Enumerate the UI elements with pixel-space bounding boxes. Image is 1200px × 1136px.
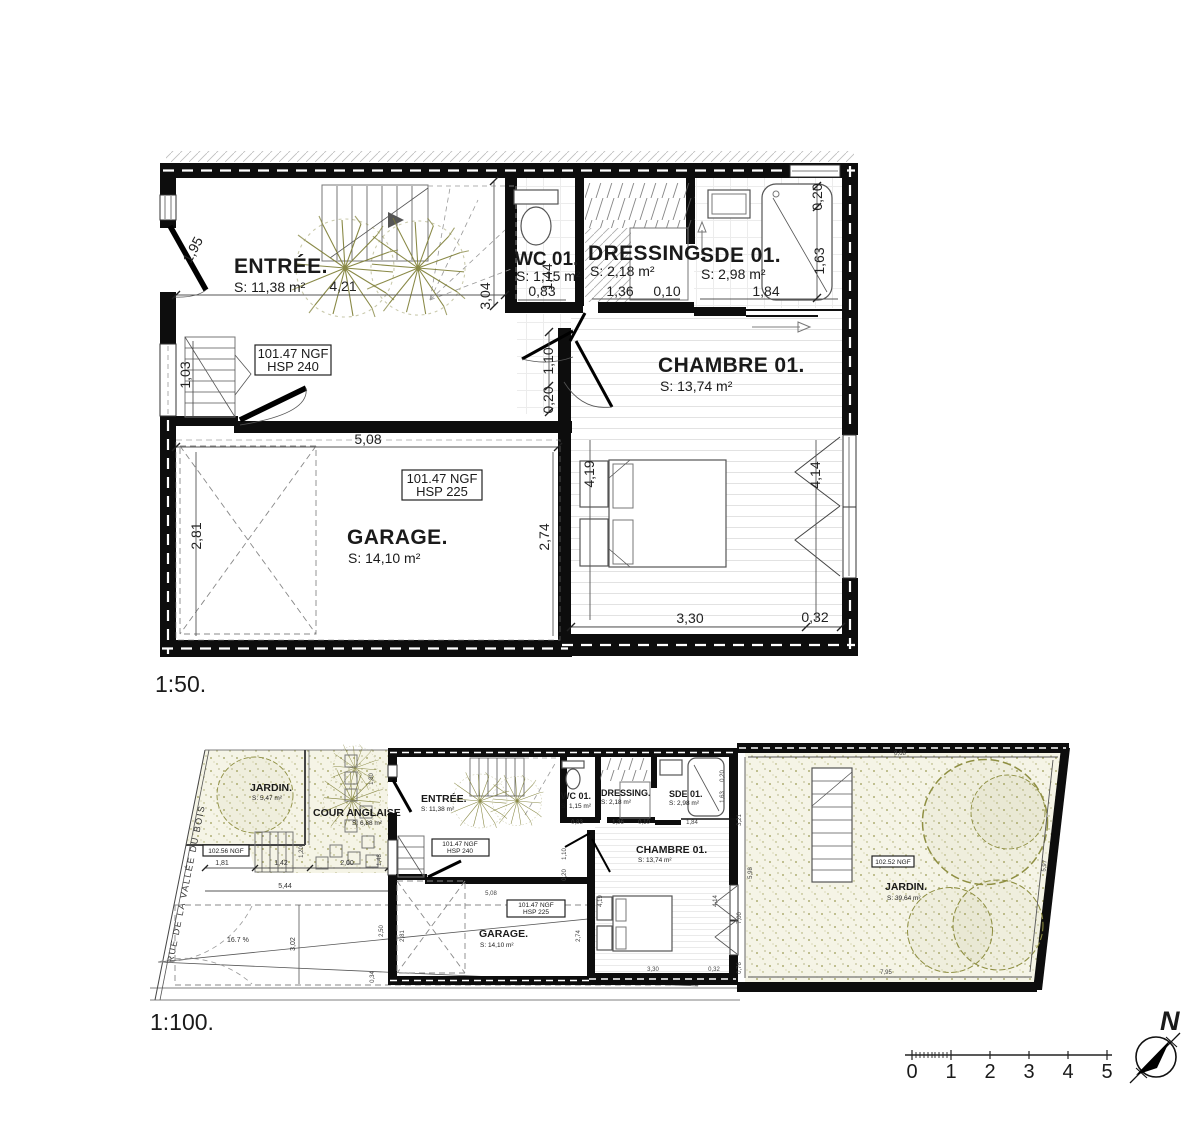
- scalebar-1: 1: [945, 1061, 956, 1083]
- dim-cour-2: 1,48: [377, 854, 383, 866]
- dim-front-c: 2,00: [340, 860, 354, 867]
- ngf-box-garage-small: 101.47 NGF HSP 225: [507, 900, 565, 917]
- room-label-sde: SDE 01.: [700, 244, 781, 267]
- insulation-hatch: [166, 151, 854, 162]
- ngf-text: 101.47 NGF: [442, 841, 477, 848]
- room-label-entree: ENTRÉE.: [234, 255, 328, 278]
- dim-hall-1: 1,10: [540, 347, 556, 374]
- dim-garden-l3: 7,00: [737, 912, 743, 924]
- dim-small: 0,20: [720, 770, 726, 782]
- dim-small: 1,10: [562, 848, 568, 860]
- dim-small: 4,14: [713, 895, 719, 907]
- jardin-back-label: JARDIN.: [885, 881, 927, 893]
- dim-garden-l4: 0,76: [737, 962, 743, 974]
- room-area-dressing-small: S: 2,18 m²: [601, 799, 632, 806]
- room-area-chambre: S: 13,74 m²: [660, 378, 733, 394]
- ngf-box-entree-small: 101.47 NGF HSP 240: [432, 839, 489, 856]
- room-area-garage-small: S: 14,10 m²: [480, 942, 514, 949]
- entree-hsp: HSP 240: [267, 359, 319, 374]
- room-area-dressing: S: 2,18 m²: [590, 263, 655, 279]
- scalebar-4: 4: [1062, 1061, 1073, 1083]
- dim-chambre-right: 4,14: [807, 461, 823, 488]
- floor-plan-sheet: 101.47 NGF HSP 240 101.47 NGF HSP 225 EN…: [0, 0, 1200, 1136]
- jardin-back-area: S: 39,64 m²: [887, 895, 921, 902]
- room-area-garage: S: 14,10 m²: [348, 550, 421, 566]
- back-ngf-level: 102.52 NGF: [875, 859, 910, 866]
- ramp-slope: 16.7 %: [227, 937, 249, 944]
- room-label-sde-small: SDE 01.: [669, 789, 703, 799]
- dim-front-b: 1,42: [274, 860, 288, 867]
- hsp-text: HSP 225: [523, 909, 549, 916]
- room-label-chambre: CHAMBRE 01.: [658, 354, 805, 377]
- scalebar-3: 3: [1023, 1061, 1034, 1083]
- dim-shower: 1,63: [811, 247, 827, 274]
- dim-small: 4,19: [598, 895, 604, 907]
- tree-icon: [971, 775, 1045, 849]
- dim-small: 1,36: [612, 820, 624, 826]
- front-ngf-level: 102.56 NGF: [208, 848, 243, 855]
- scale-label-100: 1:100.: [150, 1009, 214, 1035]
- dim-small: 1,63: [720, 791, 726, 803]
- north-label: N: [1160, 1006, 1180, 1036]
- tree-icon: [491, 775, 544, 826]
- scalebar-5: 5: [1101, 1061, 1112, 1083]
- room-area-entree-small: S: 11,38 m²: [421, 806, 455, 813]
- dim-small: 2,74: [576, 930, 582, 942]
- winder-stair: [185, 337, 251, 417]
- dim-hall-2: 0,20: [540, 386, 556, 413]
- dim-front-total: 5,44: [278, 883, 292, 890]
- room-area-sde: S: 2,98 m²: [701, 266, 766, 282]
- tree-icon: [953, 880, 1043, 970]
- dim-small: 1,84: [686, 820, 698, 826]
- cour-anglaise-area: S: 6,88 m²: [352, 820, 383, 827]
- exterior-stair-back: [812, 768, 852, 882]
- dim-small: 5,08: [485, 891, 497, 897]
- scale-bar: 0 1 2 3 4 5: [905, 1050, 1113, 1083]
- room-area-entree: S: 11,38 m²: [234, 279, 306, 295]
- room-area-chambre-small: S: 13,74 m²: [638, 857, 672, 864]
- ngf-box-back: 102.52 NGF: [872, 856, 914, 867]
- room-label-wc-small: WC 01.: [561, 791, 591, 801]
- dim-cour-1: 1,20: [299, 846, 305, 858]
- room-label-garage-small: GARAGE.: [479, 928, 528, 940]
- dim-sde-width: 1,84: [752, 283, 779, 299]
- nightstand: [580, 519, 608, 566]
- street-label: RUE DE LA VALLÉE DU BOIS: [165, 804, 207, 964]
- dim-garage-left: 2,81: [188, 522, 204, 549]
- dim-ramp-depth: 3,02: [290, 937, 297, 951]
- room-area-wc-small: S: 1,15 m²: [561, 803, 592, 810]
- dim-garden-top: 8,68: [894, 751, 906, 757]
- scalebar-2: 2: [984, 1061, 995, 1083]
- dim-ramp-r1: 2,50: [379, 925, 385, 937]
- dim-dressing-width: 1,36: [606, 283, 633, 299]
- dim-entree-width: 4,21: [329, 278, 356, 294]
- ngf-text: 101.47 NGF: [518, 902, 553, 909]
- jardin-front-area: S: 5,47 m²: [252, 795, 283, 802]
- dim-small: 0,32: [708, 967, 720, 973]
- room-area-sde-small: S: 2,98 m²: [669, 800, 700, 807]
- garage-hsp: HSP 225: [416, 484, 468, 499]
- dim-front-a: 1,81: [215, 860, 229, 867]
- dim-entry-door: 1,95: [179, 234, 206, 266]
- dim-cour-3: 1,80: [369, 773, 375, 785]
- dim-garden-l2: 5,98: [748, 867, 754, 879]
- room-label-chambre-small: CHAMBRE 01.: [636, 844, 707, 856]
- dim-small: 0,20: [562, 869, 568, 881]
- room-label-garage: GARAGE.: [347, 526, 448, 549]
- dim-stair: 1,03: [177, 361, 193, 388]
- dim-small: 3,30: [647, 967, 659, 973]
- dim-joint: 0,10: [653, 283, 680, 299]
- house-1-100: ENTRÉE. S: 11,38 m² WC 01. S: 1,15 m² DR…: [388, 748, 738, 985]
- dim-small: 0,10: [638, 820, 650, 826]
- dim-garden-l1: 3,21: [737, 814, 743, 826]
- dim-small: 2,81: [400, 930, 406, 942]
- scalebar-0: 0: [906, 1061, 917, 1083]
- room-label-dressing-small: DRESSING.: [601, 788, 651, 798]
- dim-hall-height: 3,04: [477, 282, 493, 309]
- dim-garden-right: 5,97: [1041, 859, 1048, 872]
- dim-garden-bottom: 7,95: [880, 970, 892, 976]
- jardin-front-label: JARDIN.: [250, 782, 292, 794]
- room-label-dressing: DRESSING.: [588, 242, 707, 265]
- dim-garage-width: 5,08: [354, 431, 381, 447]
- dim-chambre-width: 3,30: [676, 610, 703, 626]
- dim-sde-top: 0,20: [809, 183, 825, 210]
- room-label-entree-small: ENTRÉE.: [421, 792, 467, 805]
- dim-wc-depth: 1,44: [539, 263, 555, 290]
- north-compass: N: [1130, 1006, 1180, 1083]
- dim-chambre-left: 4,19: [581, 460, 597, 487]
- hsp-text: HSP 240: [447, 848, 473, 855]
- cour-anglaise-label: COUR ANGLAISE: [313, 807, 401, 819]
- dim-small: 0,83: [571, 820, 583, 826]
- dim-ramp-r2: 0,34: [370, 971, 376, 983]
- ngf-box-front: 102.56 NGF: [203, 845, 249, 856]
- scale-label-50: 1:50.: [155, 671, 206, 697]
- dim-chambre-edge: 0,32: [801, 609, 828, 625]
- ngf-box-garage: 101.47 NGF HSP 225: [402, 470, 482, 500]
- plan-1-100: RUE DE LA VALLÉE DU BOIS JARDIN. S: 5,47…: [150, 743, 1070, 1035]
- ngf-box-entree: 101.47 NGF HSP 240: [255, 345, 331, 375]
- dim-garage-right: 2,74: [536, 523, 552, 550]
- plan-1-50: 101.47 NGF HSP 240 101.47 NGF HSP 225 EN…: [155, 151, 858, 697]
